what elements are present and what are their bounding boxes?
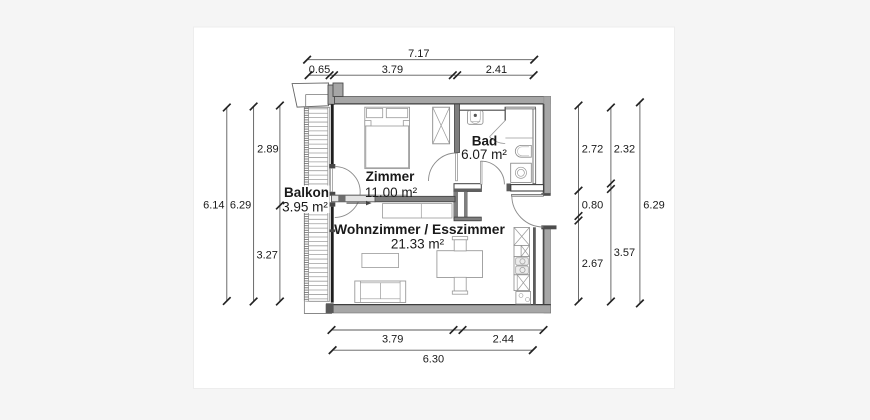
svg-text:7.17: 7.17 <box>408 48 429 60</box>
svg-text:2.41: 2.41 <box>486 64 507 76</box>
svg-text:2.67: 2.67 <box>582 258 603 270</box>
svg-text:Balkon: Balkon <box>284 185 329 200</box>
svg-text:3.79: 3.79 <box>382 64 403 76</box>
svg-text:6.29: 6.29 <box>230 199 251 211</box>
svg-text:3.57: 3.57 <box>614 247 635 259</box>
svg-text:3.27: 3.27 <box>256 250 277 262</box>
svg-text:6.07 m²: 6.07 m² <box>461 147 507 162</box>
svg-text:0.65: 0.65 <box>309 64 330 76</box>
svg-text:0.80: 0.80 <box>582 199 603 211</box>
svg-text:Wohnzimmer / Esszimmer: Wohnzimmer / Esszimmer <box>334 222 505 237</box>
svg-text:2.89: 2.89 <box>257 144 278 156</box>
svg-text:2.72: 2.72 <box>582 144 603 156</box>
svg-text:21.33 m²: 21.33 m² <box>391 237 445 252</box>
svg-text:2.32: 2.32 <box>614 144 635 156</box>
svg-text:Zimmer: Zimmer <box>366 169 416 184</box>
svg-text:6.30: 6.30 <box>423 354 444 366</box>
svg-text:3.79: 3.79 <box>382 333 403 345</box>
svg-text:11.00 m²: 11.00 m² <box>365 185 418 200</box>
svg-text:3.95 m²: 3.95 m² <box>282 199 328 214</box>
svg-text:6.14: 6.14 <box>203 199 224 211</box>
svg-text:2.44: 2.44 <box>493 333 514 345</box>
svg-text:6.29: 6.29 <box>643 199 664 211</box>
